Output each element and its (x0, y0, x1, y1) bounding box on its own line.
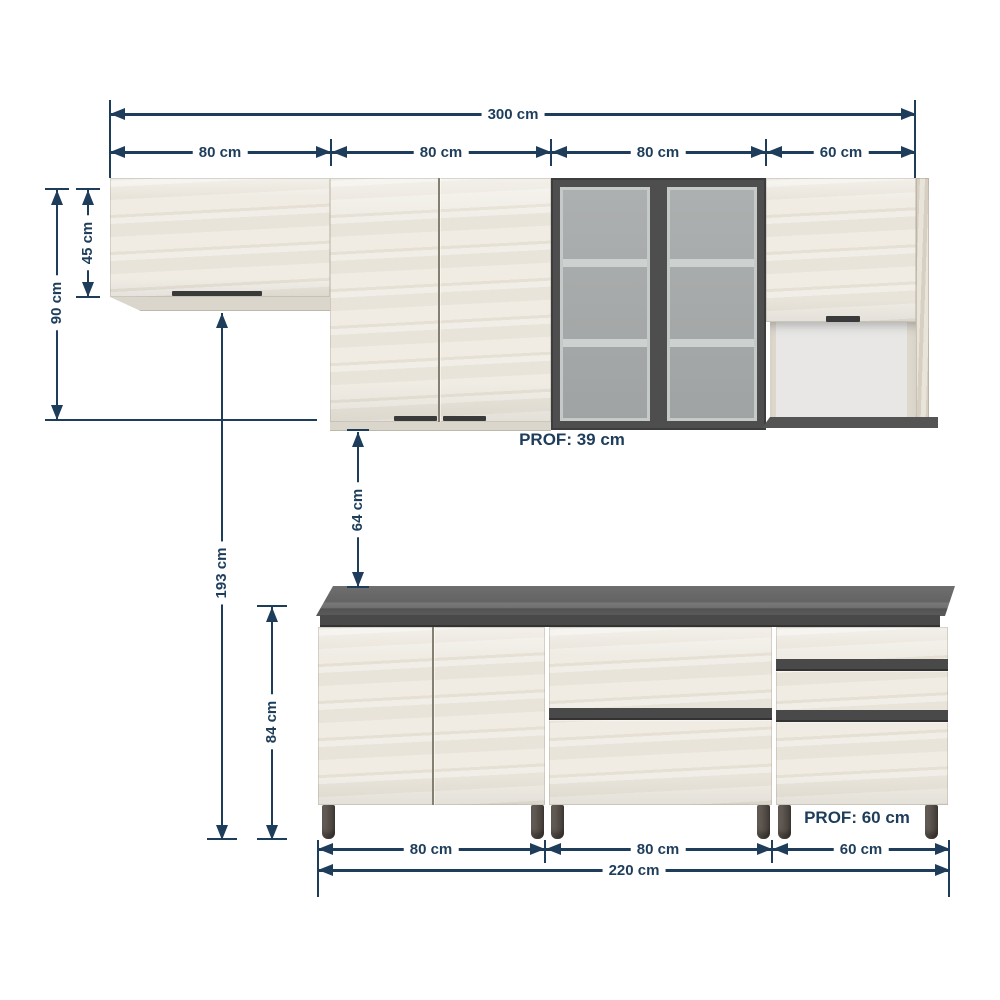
arrow-right (901, 108, 916, 120)
wall-two-door-cabinet-gap (438, 178, 440, 422)
countertop-handle-rail (320, 615, 940, 627)
base-two-door-gap (432, 627, 434, 805)
dim-tick (347, 429, 369, 431)
arrow-up (352, 432, 364, 447)
wall-flap-cabinet (110, 178, 330, 297)
dim-top-seg4-label: 60 cm (814, 144, 869, 162)
glass-door-left (560, 187, 650, 421)
arrow-right (751, 146, 766, 158)
kitchen-dimension-diagram: 300 cm 80 cm 80 cm 80 cm 60 cm 45 cm 90 … (0, 0, 1000, 1000)
arrow-left (318, 843, 333, 855)
arrow-down (352, 572, 364, 587)
dim-84-label: 84 cm (263, 695, 281, 750)
arrow-right (536, 146, 551, 158)
lower-depth-label: PROF: 60 cm (798, 809, 916, 827)
dim-193-label: 193 cm (213, 542, 231, 605)
arrow-down (266, 825, 278, 840)
upper-depth-label: PROF: 39 cm (513, 431, 631, 449)
base-drawer-rail (776, 710, 948, 722)
glass-shelf-line (670, 339, 754, 347)
arrow-down (216, 825, 228, 840)
arrow-left (332, 146, 347, 158)
extension-line (45, 419, 317, 421)
arrow-right (935, 864, 950, 876)
arrow-left (110, 146, 125, 158)
arrow-left (318, 864, 333, 876)
arrow-up (216, 313, 228, 328)
arrow-right (901, 146, 916, 158)
base-drawer-rail (549, 708, 772, 720)
cabinet-leg (531, 805, 544, 839)
wall-two-door-right-handle (443, 416, 486, 421)
wall-open-niche (770, 322, 916, 417)
dim-top-seg2-label: 80 cm (414, 144, 469, 162)
arrow-down (82, 282, 94, 297)
wall-two-door-cabinet (330, 178, 551, 422)
base-drawer-rail (776, 659, 948, 671)
wall-niche-flap-door (766, 178, 916, 322)
dim-90-label: 90 cm (48, 276, 66, 331)
dim-64-label: 64 cm (349, 483, 367, 538)
dim-bottom-seg3-label: 60 cm (834, 841, 889, 859)
arrow-up (82, 190, 94, 205)
wall-glass-cabinet (551, 178, 766, 430)
dim-bottom-total-label: 220 cm (603, 862, 666, 880)
glass-door-right (667, 187, 757, 421)
wall-flap-cabinet-handle (172, 291, 262, 296)
wall-two-door-left-handle (394, 416, 437, 421)
base-three-drawer-unit (776, 627, 948, 805)
arrow-up (51, 190, 63, 205)
wall-flap-cabinet-underside (110, 297, 330, 311)
glass-shelf-line (670, 259, 754, 267)
wall-run-right-side-panel (916, 178, 929, 418)
dim-top-seg1-label: 80 cm (193, 144, 248, 162)
dim-bottom-seg1-label: 80 cm (404, 841, 459, 859)
arrow-left (773, 843, 788, 855)
arrow-right (316, 146, 331, 158)
countertop (312, 586, 958, 616)
arrow-left (767, 146, 782, 158)
cabinet-leg (778, 805, 791, 839)
arrow-right (530, 843, 545, 855)
arrow-down (51, 405, 63, 420)
dim-top-total-label: 300 cm (482, 106, 545, 124)
arrow-right (757, 843, 772, 855)
arrow-left (546, 843, 561, 855)
base-two-door-unit (318, 627, 545, 805)
wall-niche-bottom-shelf (762, 417, 938, 428)
arrow-up (266, 607, 278, 622)
dim-bottom-seg2-label: 80 cm (631, 841, 686, 859)
cabinet-leg (757, 805, 770, 839)
arrow-right (935, 843, 950, 855)
arrow-left (552, 146, 567, 158)
cabinet-leg (551, 805, 564, 839)
cabinet-leg (322, 805, 335, 839)
cabinet-leg (925, 805, 938, 839)
dim-45-label: 45 cm (79, 216, 97, 271)
glass-shelf-line (563, 259, 647, 267)
arrow-left (110, 108, 125, 120)
base-two-drawer-unit (549, 627, 772, 805)
dim-top-seg3-label: 80 cm (631, 144, 686, 162)
glass-shelf-line (563, 339, 647, 347)
